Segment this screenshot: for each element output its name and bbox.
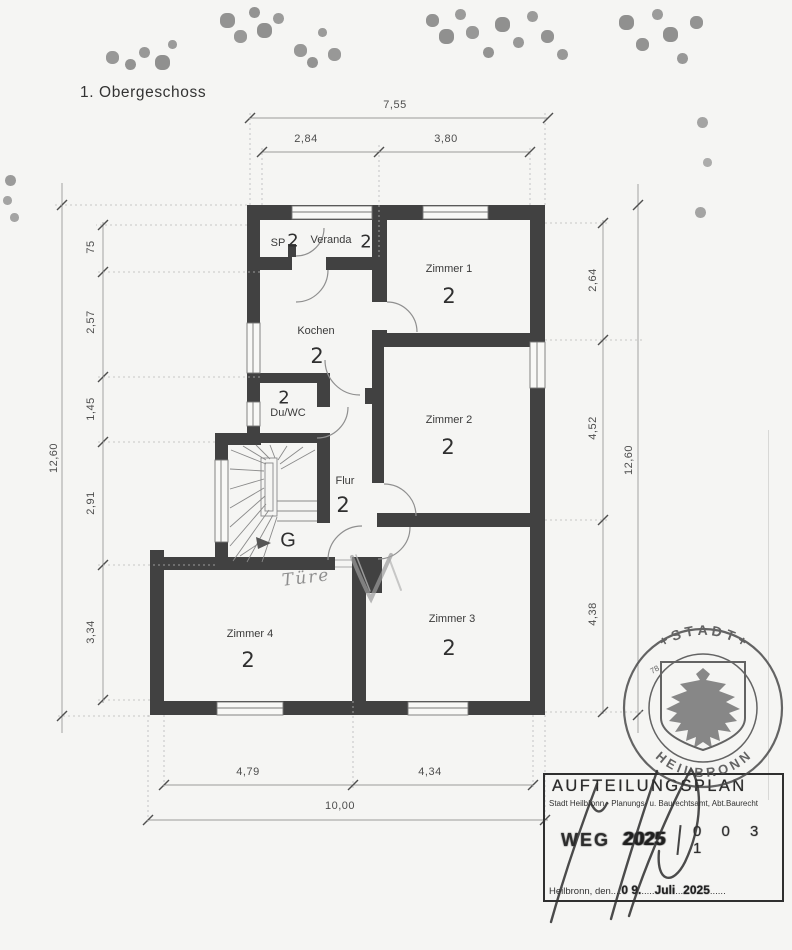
room-label-kochen: Kochen <box>297 325 334 337</box>
stamp-title: AUFTEILUNGSPLAN <box>552 777 747 796</box>
room-label-zimmer2: Zimmer 2 <box>426 414 472 426</box>
room-label-flur: Flur <box>336 475 355 487</box>
dim-left-seg4: 2,91 <box>85 491 97 514</box>
room-label-duwc: Du/WC <box>270 407 305 419</box>
room-label-zimmer4: Zimmer 4 <box>227 628 273 640</box>
unit-number-zimmer4: 2 <box>241 648 254 672</box>
dim-left-seg1: 75 <box>85 240 97 253</box>
stamp-city-prefix: Heilbronn, den <box>549 886 611 897</box>
dim-right-total: 12,60 <box>623 445 635 475</box>
dim-left-seg2: 2,57 <box>85 310 97 333</box>
dim-right-seg3: 4,38 <box>587 602 599 625</box>
dim-left-seg5: 3,34 <box>85 620 97 643</box>
stamp-file-number-row: WEG 2025 0 0 3 1 <box>561 823 782 857</box>
dim-top-seg2: 3,80 <box>434 133 457 145</box>
stamp-date-year: 2025 <box>683 883 710 897</box>
stamp-weg-divider <box>677 825 682 855</box>
room-label-zimmer1: Zimmer 1 <box>426 263 472 275</box>
unit-number-kochen: 2 <box>310 344 323 368</box>
dim-bottom-seg1: 4,79 <box>236 766 259 778</box>
stamp-date-month: Juli <box>655 883 676 897</box>
stair-direction-arrow <box>256 537 271 549</box>
dim-right-seg2: 4,52 <box>587 416 599 439</box>
dim-top-total: 7,55 <box>383 99 406 111</box>
stamp-weg-number: 0 0 3 1 <box>693 823 782 857</box>
unit-number-zimmer2: 2 <box>441 435 454 459</box>
stamp-date-day: 0 9. <box>621 883 641 897</box>
scanned-floor-plan-page: 1. Obergeschoss <box>0 0 792 950</box>
unit-number-zimmer3: 2 <box>442 636 455 660</box>
stamp-weg-label: WEG <box>561 830 610 851</box>
stamp-dots-d: ...... <box>710 886 726 897</box>
dim-left-total: 12,60 <box>48 443 60 473</box>
walls <box>150 205 545 715</box>
unit-number-zimmer1: 2 <box>442 284 455 308</box>
stamp-dots-b: ..... <box>641 886 654 897</box>
dim-top-seg1: 2,84 <box>294 133 317 145</box>
approval-stamp-box: AUFTEILUNGSPLAN Stadt Heilbronn - Planun… <box>543 773 784 902</box>
room-label-sp: SP <box>271 237 286 249</box>
stamp-date-row: Heilbronn, den....0 9......Juli...2025..… <box>549 883 726 897</box>
room-label-zimmer3: Zimmer 3 <box>429 613 475 625</box>
unit-number-sp: 2 <box>287 231 298 252</box>
room-label-stairs-g: G <box>280 530 296 553</box>
unit-number-flur: 2 <box>336 493 349 517</box>
unit-number-duwc: 2 <box>278 388 289 409</box>
room-label-veranda: Veranda <box>311 234 352 246</box>
stamp-dots-c: ... <box>675 886 683 897</box>
page-title: 1. Obergeschoss <box>80 84 206 102</box>
stamp-dots-a: .... <box>611 886 622 897</box>
dim-bottom-seg2: 4,34 <box>418 766 441 778</box>
staircase <box>230 445 317 562</box>
dim-right-seg1: 2,64 <box>587 268 599 291</box>
dim-bottom-total: 10,00 <box>325 800 355 812</box>
dim-left-seg3: 1,45 <box>85 397 97 420</box>
stamp-subtitle: Stadt Heilbronn - Planungs- u. Baurechts… <box>549 799 758 808</box>
stamp-weg-year: 2025 <box>622 829 666 851</box>
unit-number-veranda: 2 <box>360 232 371 253</box>
